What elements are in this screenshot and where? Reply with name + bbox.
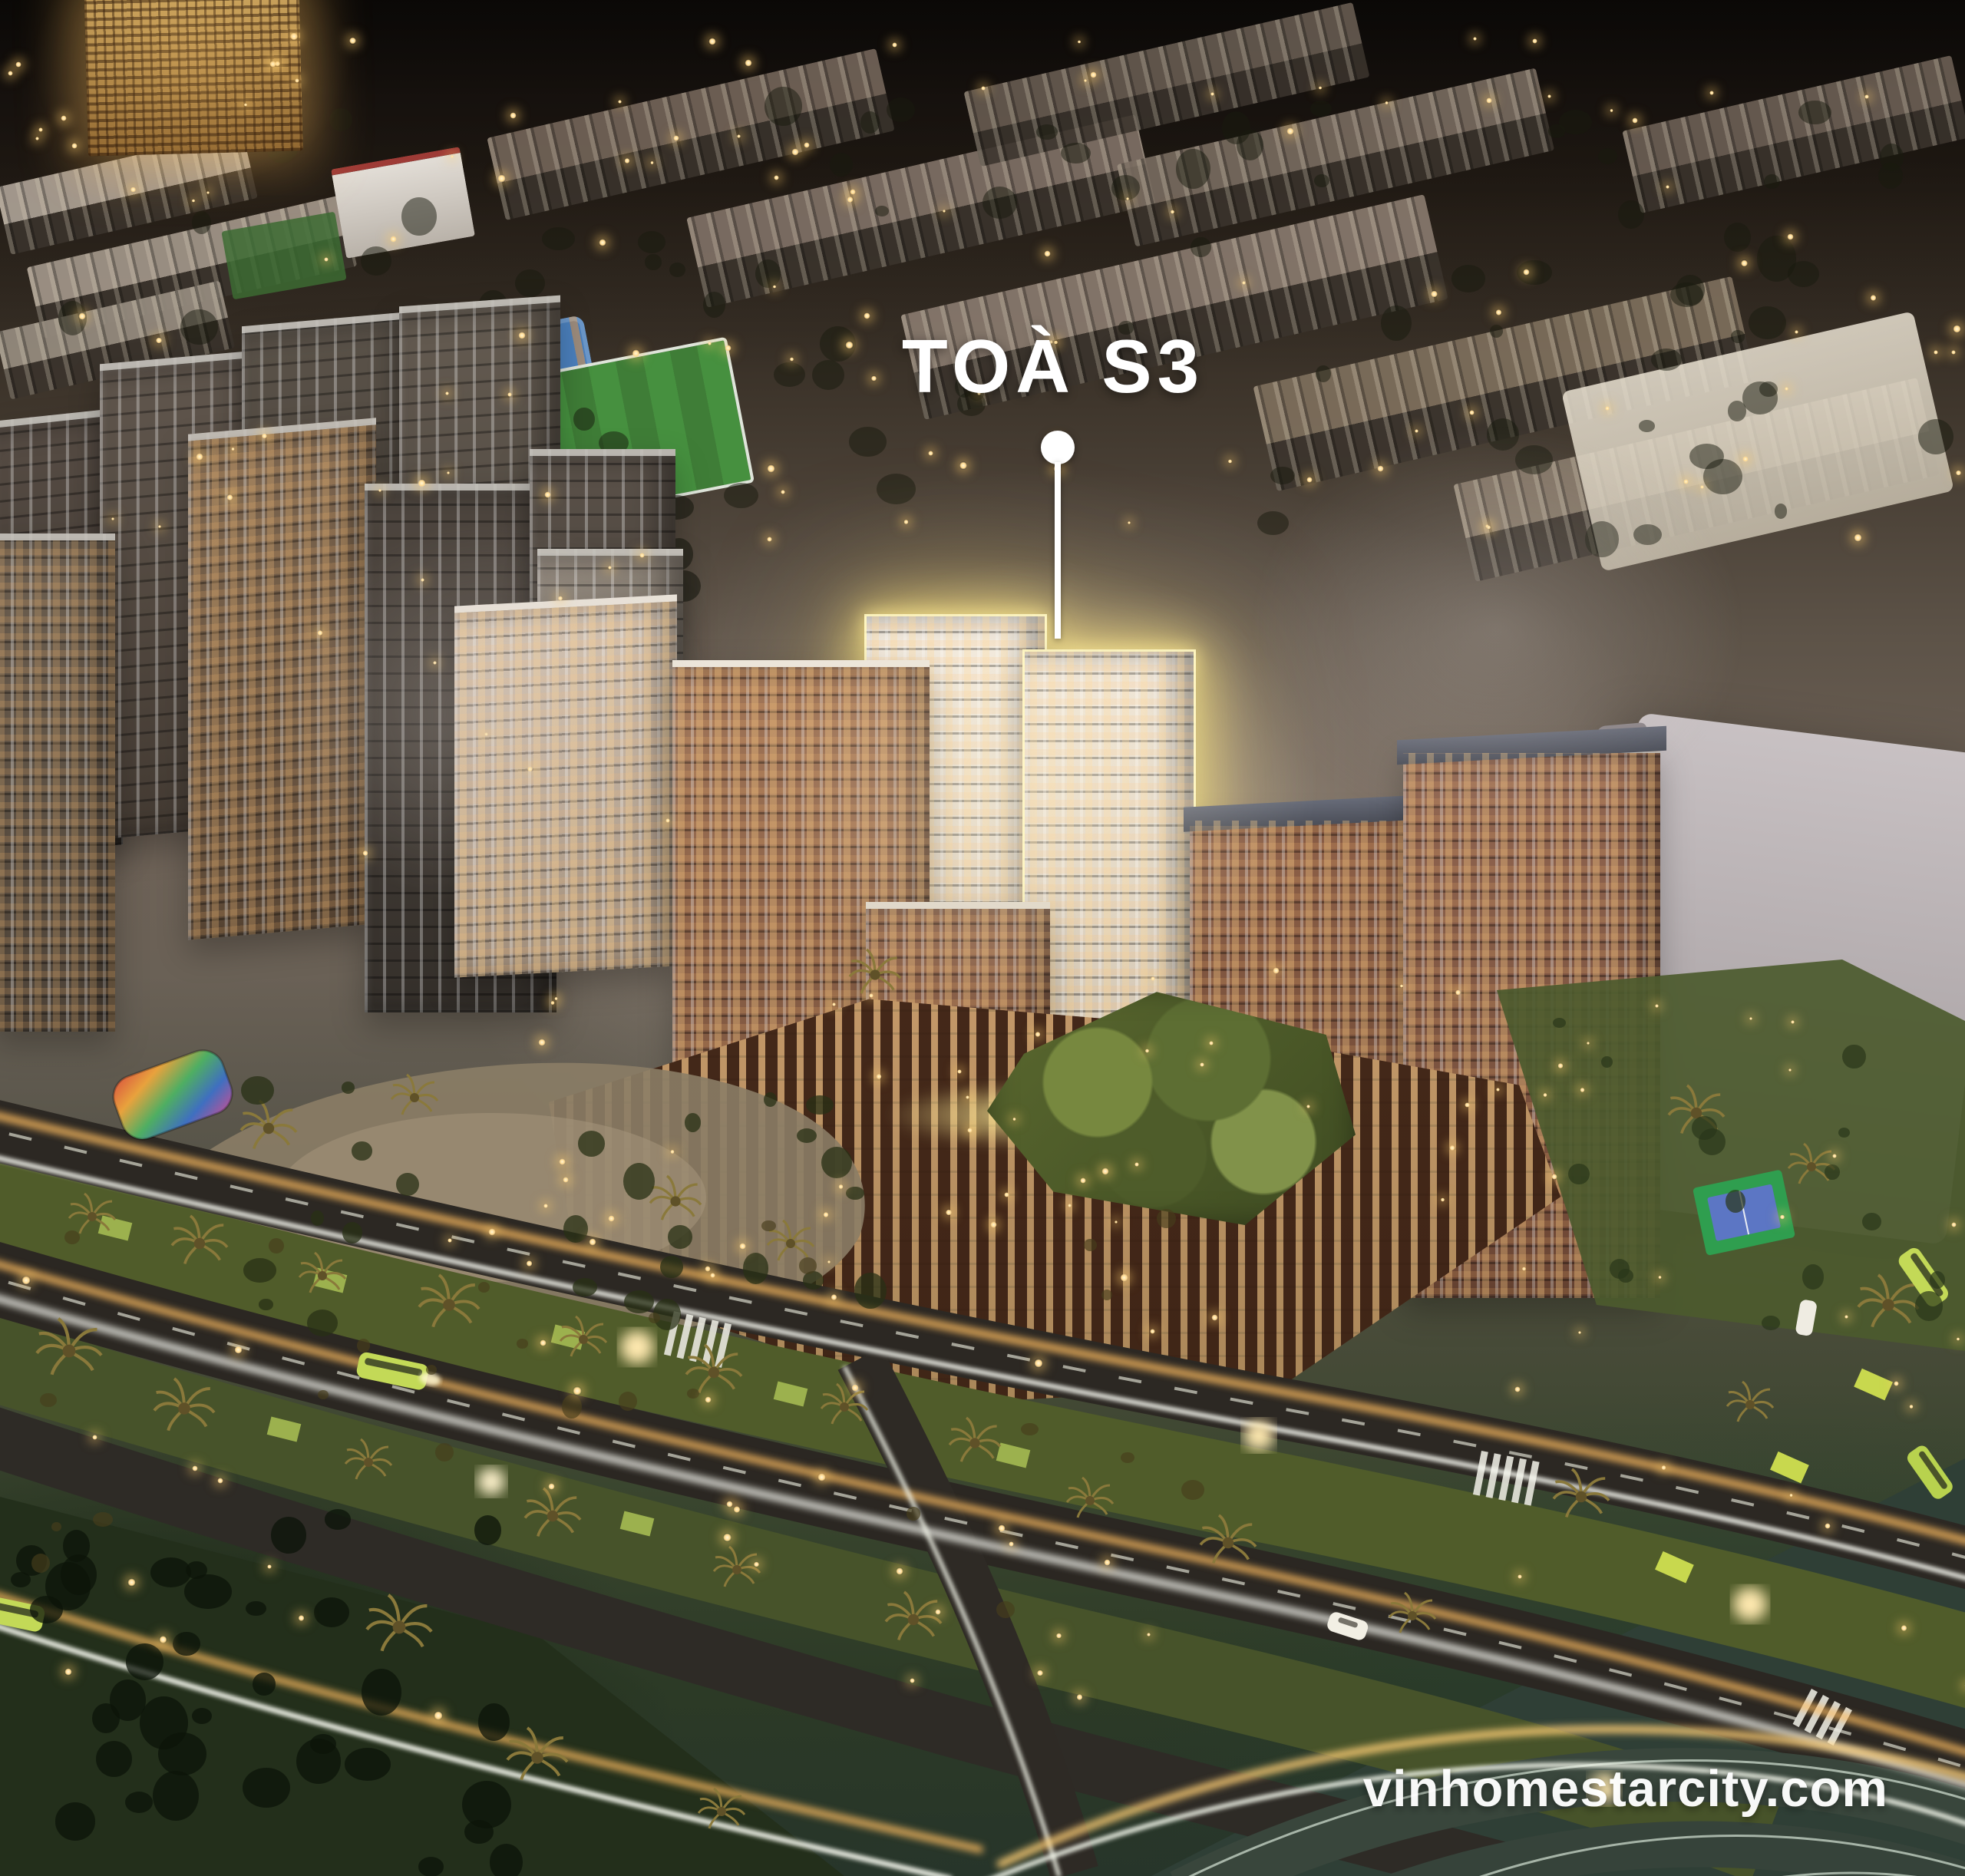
location-pin-head: [1041, 431, 1075, 464]
watermark: vinhomestarcity.com: [1363, 1759, 1888, 1818]
building-callout-label: TOÀ S3: [823, 327, 1283, 406]
location-pin-stem: [1055, 462, 1061, 639]
aerial-dusk-render: TOÀ S3 vinhomestarcity.com: [0, 0, 1965, 1876]
